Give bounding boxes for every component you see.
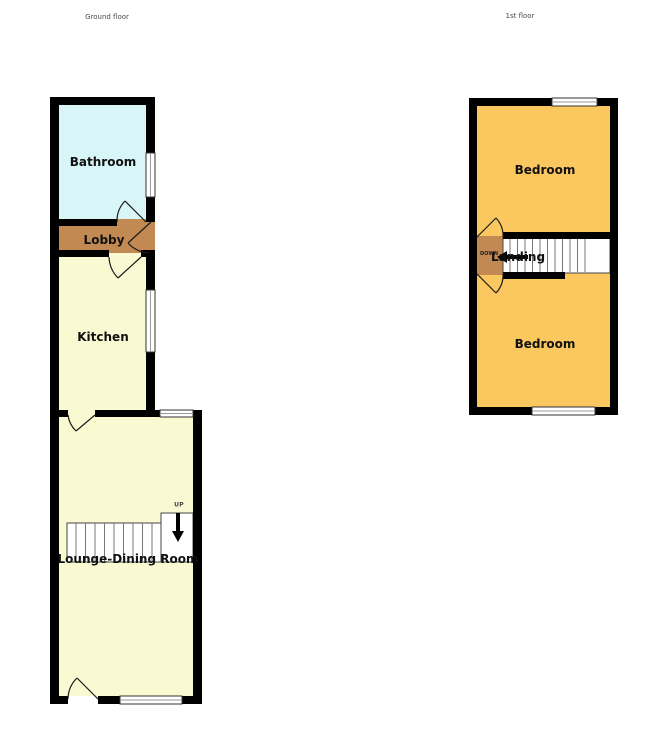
window-bedroom-back: [552, 98, 597, 106]
floorplan-canvas: [0, 0, 650, 736]
first-floor-plan: [469, 98, 618, 415]
window-kitchen: [146, 290, 155, 352]
ground-floor-plan: [50, 97, 202, 704]
window-bedroom-front: [532, 407, 595, 415]
window-lounge-top: [160, 410, 193, 417]
room-bathroom: [59, 104, 146, 222]
window-lounge-bottom: [120, 696, 182, 704]
room-bedroom-front: [477, 273, 610, 407]
window-bathroom: [146, 153, 155, 197]
room-kitchen: [59, 253, 146, 415]
first-staircase: [497, 238, 610, 273]
room-landing: [477, 236, 503, 275]
